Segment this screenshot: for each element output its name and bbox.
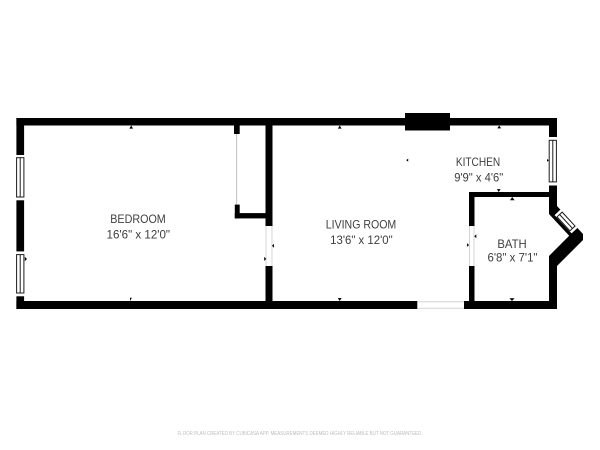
- svg-text:BEDROOM: BEDROOM: [110, 212, 166, 226]
- svg-text:16'6" x 12'0": 16'6" x 12'0": [107, 227, 171, 241]
- svg-text:LIVING ROOM: LIVING ROOM: [326, 218, 397, 232]
- svg-text:FLOOR PLAN CREATED BY CUBICASA: FLOOR PLAN CREATED BY CUBICASA APP. MEAS…: [178, 431, 423, 437]
- svg-text:KITCHEN: KITCHEN: [456, 155, 500, 169]
- svg-text:13'6" x 12'0": 13'6" x 12'0": [330, 233, 393, 247]
- svg-text:6'8" x 7'1": 6'8" x 7'1": [488, 251, 538, 265]
- svg-text:9'9" x 4'6": 9'9" x 4'6": [454, 171, 503, 185]
- svg-text:BATH: BATH: [497, 237, 526, 251]
